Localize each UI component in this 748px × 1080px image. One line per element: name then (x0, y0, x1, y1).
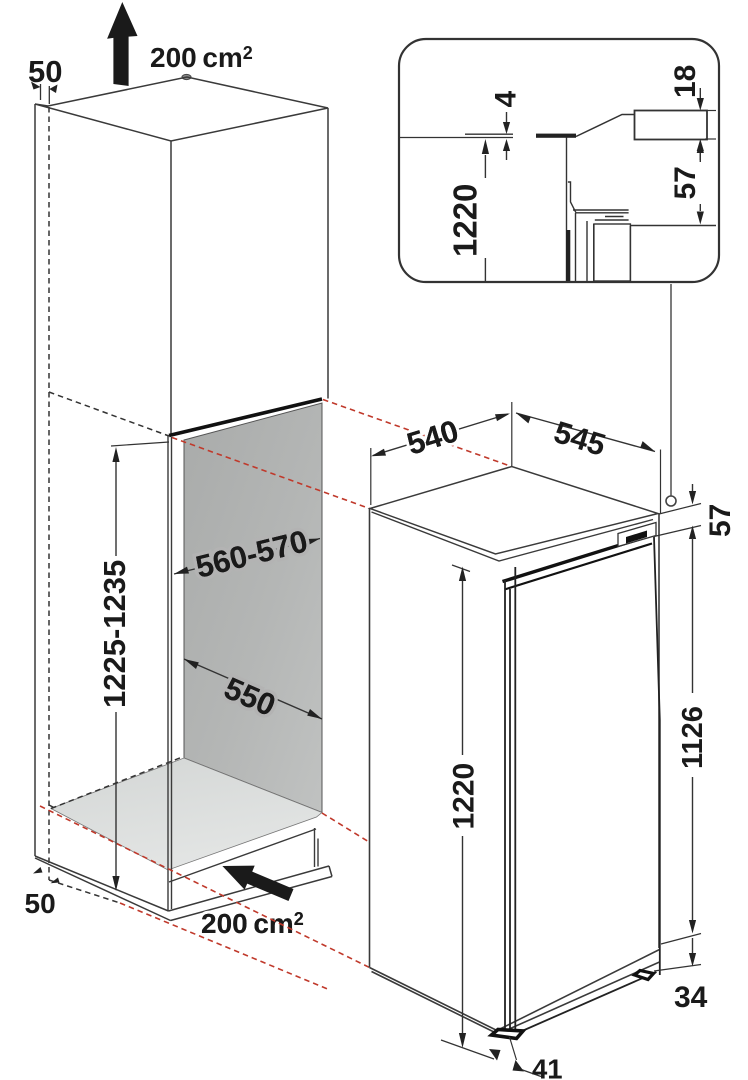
svg-text:200 cm2: 200 cm2 (201, 908, 304, 939)
svg-text:34: 34 (674, 981, 708, 1014)
svg-text:41: 41 (532, 1054, 563, 1080)
svg-text:57: 57 (704, 504, 737, 537)
svg-text:50: 50 (25, 888, 56, 919)
svg-text:1225-1235: 1225-1235 (97, 560, 132, 708)
svg-text:4: 4 (490, 91, 523, 108)
svg-text:1126: 1126 (677, 706, 709, 769)
svg-text:1220: 1220 (447, 184, 484, 257)
svg-text:57: 57 (669, 166, 702, 199)
svg-text:18: 18 (669, 65, 702, 98)
svg-text:200 cm2: 200 cm2 (150, 42, 253, 73)
svg-text:1220: 1220 (448, 763, 481, 830)
